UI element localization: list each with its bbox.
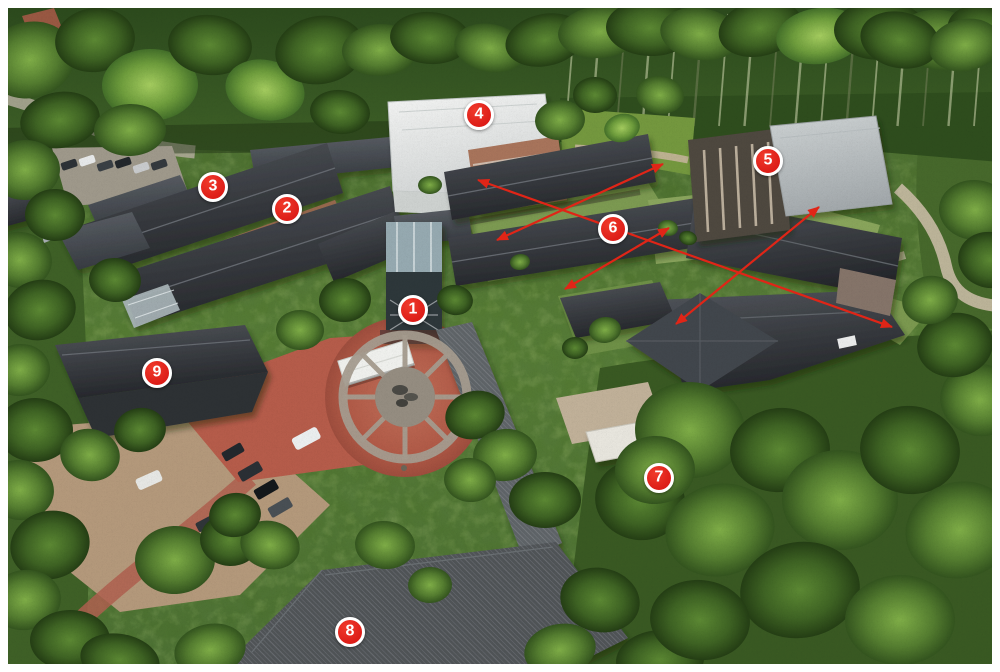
- building-marker-3: 3: [198, 172, 228, 202]
- building-marker-number: 6: [609, 221, 618, 237]
- building-marker-number: 1: [409, 302, 418, 318]
- building-marker-number: 8: [346, 624, 355, 640]
- building-marker-8: 8: [335, 617, 365, 647]
- building-marker-number: 9: [153, 365, 162, 381]
- building-marker-number: 2: [283, 201, 292, 217]
- building-marker-number: 3: [209, 179, 218, 195]
- building-marker-5: 5: [753, 146, 783, 176]
- building-marker-2: 2: [272, 194, 302, 224]
- building-marker-9: 9: [142, 358, 172, 388]
- building-marker-7: 7: [644, 463, 674, 493]
- building-marker-number: 5: [764, 153, 773, 169]
- building-marker-4: 4: [464, 100, 494, 130]
- newspaper-aerial-photo: 123456789: [0, 0, 1000, 672]
- building-marker-1: 1: [398, 295, 428, 325]
- building-marker-number: 7: [655, 470, 664, 486]
- photo-grain: [0, 0, 1000, 672]
- aerial-photo-scene: [0, 0, 1000, 672]
- building-marker-number: 4: [475, 107, 484, 123]
- building-marker-6: 6: [598, 214, 628, 244]
